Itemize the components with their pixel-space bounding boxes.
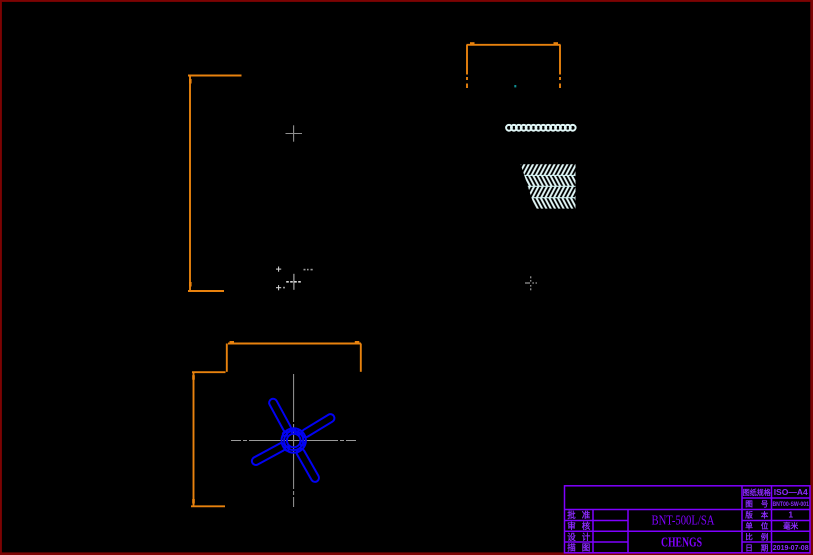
svg-text:比 例: 比 例	[745, 531, 768, 541]
svg-text:图纸规格: 图纸规格	[743, 487, 771, 497]
svg-text:审 核: 审 核	[567, 521, 590, 531]
svg-text:图 号: 图 号	[745, 499, 768, 508]
svg-text:批 准: 批 准	[567, 510, 590, 520]
svg-text:BNT00-SW-001: BNT00-SW-001	[772, 502, 809, 508]
svg-text:2019-07-08: 2019-07-08	[773, 545, 809, 552]
svg-text:1: 1	[788, 510, 793, 520]
svg-text:ISO—A4: ISO—A4	[774, 487, 808, 497]
svg-text:单 位: 单 位	[745, 521, 768, 531]
svg-text:BNT-500L/SA: BNT-500L/SA	[652, 513, 715, 528]
svg-text:日 期: 日 期	[745, 542, 768, 552]
svg-text:设 计: 设 计	[567, 532, 590, 542]
svg-text:描 图: 描 图	[567, 543, 590, 553]
svg-text:CHENGS: CHENGS	[661, 535, 702, 550]
svg-text:毫米: 毫米	[783, 521, 799, 531]
svg-text:版 本: 版 本	[744, 510, 768, 520]
